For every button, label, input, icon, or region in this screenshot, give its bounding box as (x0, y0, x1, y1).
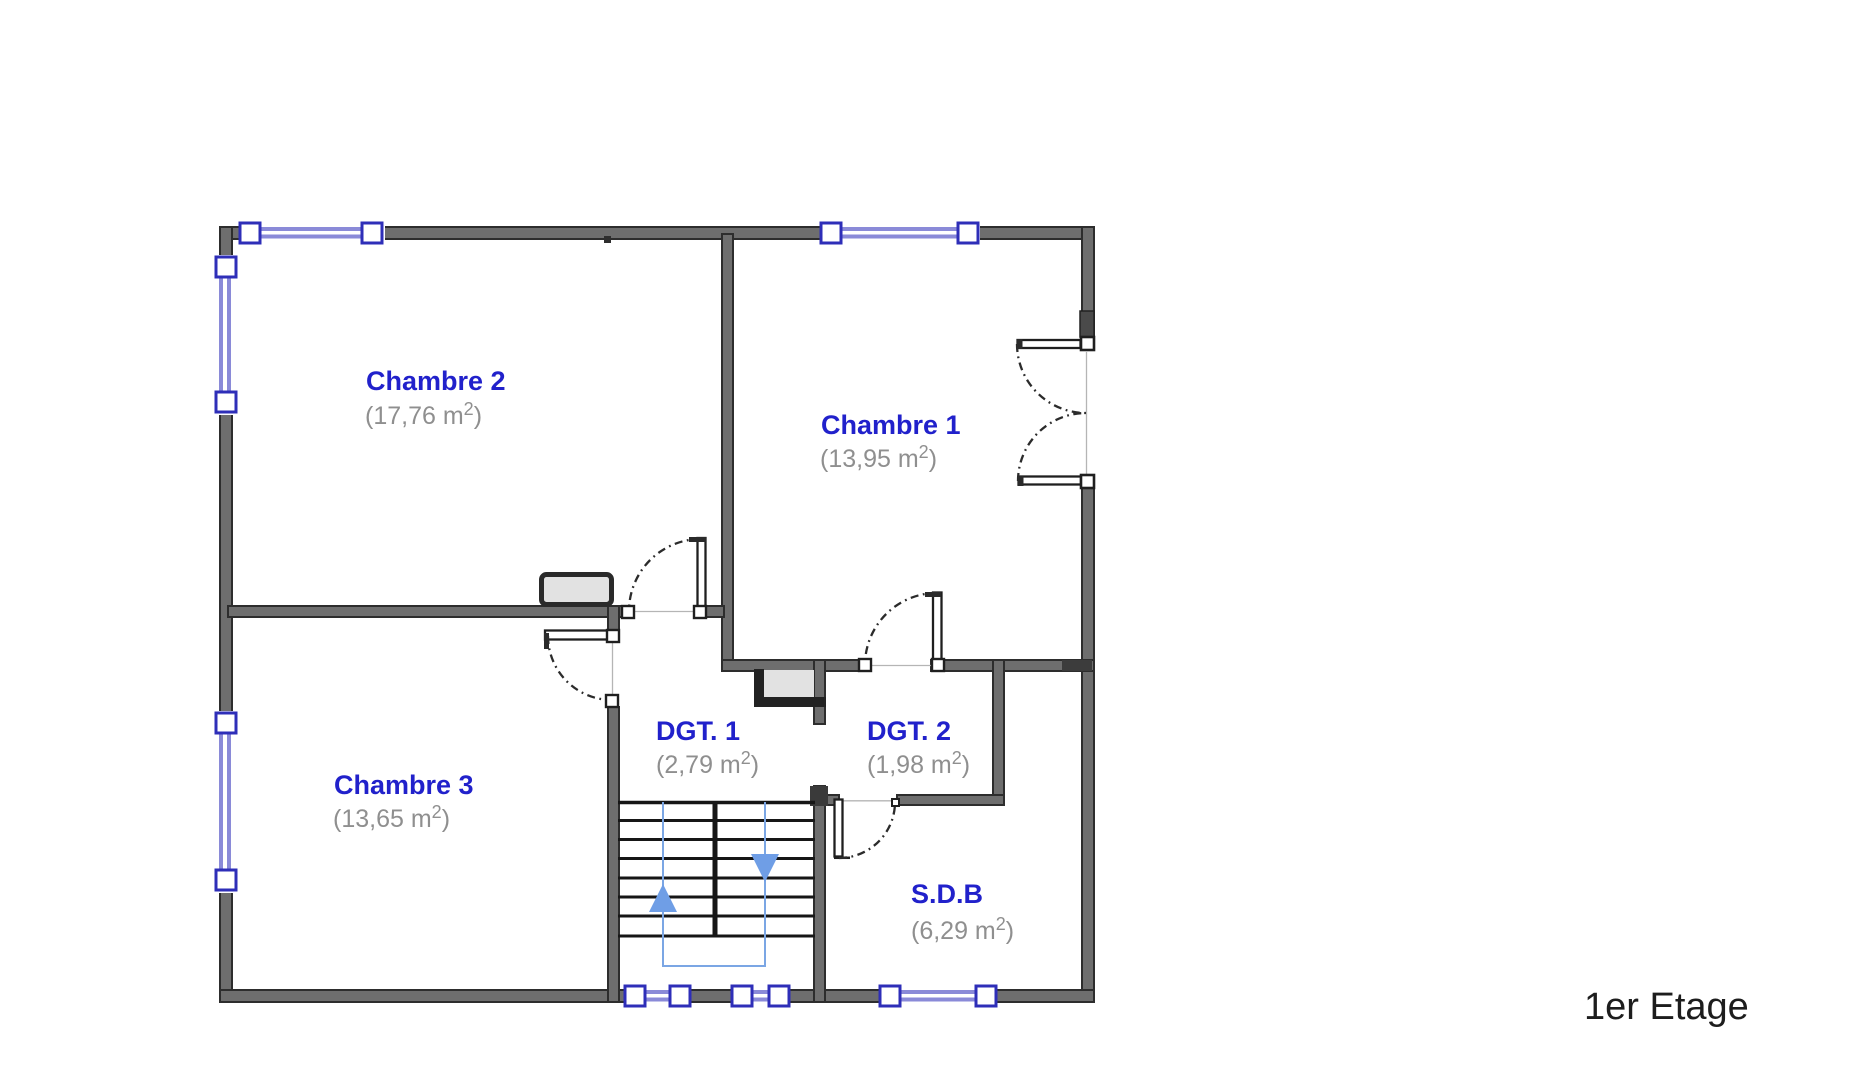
svg-text:Chambre 3: Chambre 3 (334, 770, 474, 800)
svg-text:S.D.B: S.D.B (911, 879, 983, 909)
svg-text:Chambre 2: Chambre 2 (366, 366, 506, 396)
svg-text:DGT. 2: DGT. 2 (867, 716, 951, 746)
svg-text:Chambre 1: Chambre 1 (821, 410, 961, 440)
svg-text:DGT. 1: DGT. 1 (656, 716, 740, 746)
svg-text:1er Etage: 1er Etage (1584, 986, 1749, 1028)
